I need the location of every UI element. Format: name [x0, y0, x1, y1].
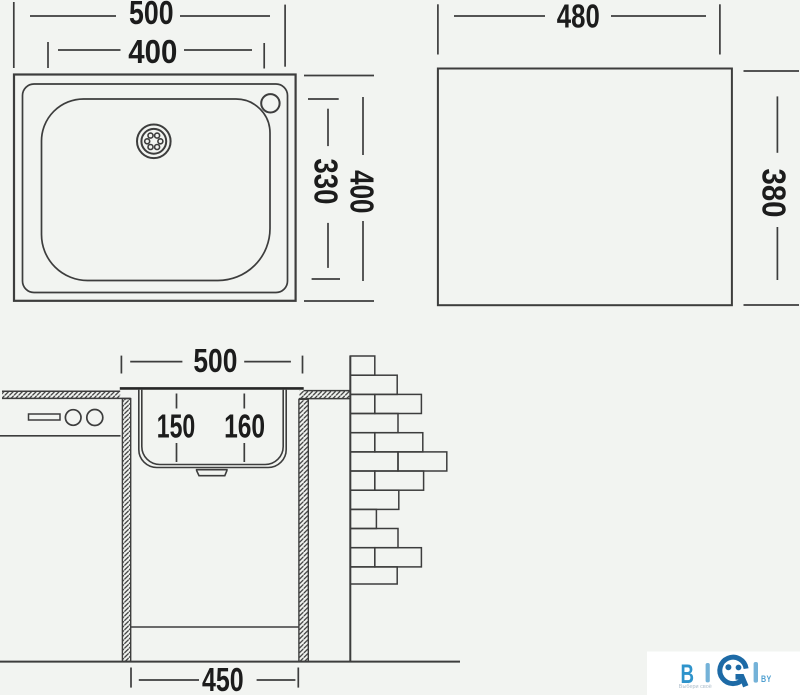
svg-text:400: 400	[128, 33, 177, 70]
svg-text:450: 450	[202, 661, 244, 695]
svg-text:330: 330	[308, 158, 345, 204]
svg-text:Выбери своё: Выбери своё	[679, 684, 712, 690]
svg-text:480: 480	[557, 0, 600, 35]
svg-text:BY: BY	[761, 674, 772, 684]
svg-text:150: 150	[157, 407, 196, 444]
svg-text:500: 500	[193, 342, 237, 379]
svg-text:500: 500	[129, 0, 174, 31]
svg-text:380: 380	[756, 169, 793, 218]
svg-text:160: 160	[224, 407, 265, 444]
svg-text:400: 400	[344, 170, 381, 213]
